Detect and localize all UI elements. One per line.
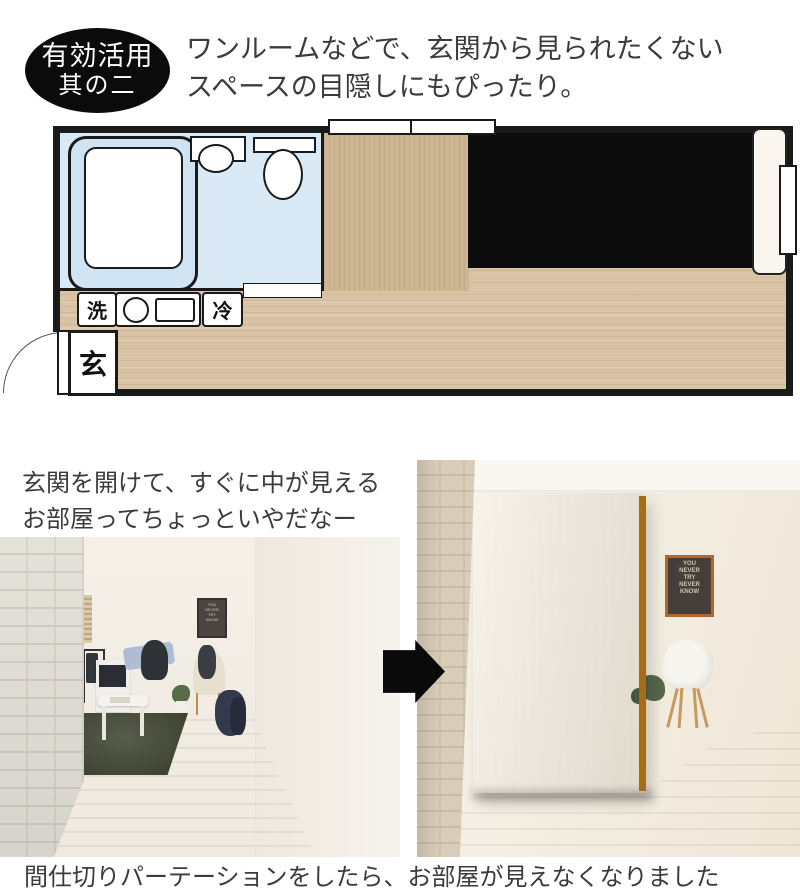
entrance-box: 玄 [68, 330, 118, 396]
washer-box: 洗 [77, 292, 117, 327]
badge-line2: 其の二 [59, 72, 137, 100]
chair-clothes [198, 645, 216, 679]
plan-window-right [779, 165, 797, 255]
plant-pot [176, 701, 186, 711]
photo-before-room-visible: YOU NEVER TRY KNOW [0, 537, 400, 857]
partition-edge [639, 496, 646, 791]
caption-line1: 玄関を開けて、すぐに中が見える [22, 466, 380, 502]
wall-poster: YOU NEVER TRY NEVER KNOW [665, 555, 714, 617]
orange-partition [473, 493, 645, 793]
usage-badge: 有効活用 其の二 [25, 28, 170, 113]
bathroom-door-opening [243, 283, 322, 298]
jacket [141, 640, 168, 680]
section-heading: ワンルームなどで、玄関から見られたくない スペースの目隠しにもぴったり。 [186, 30, 724, 106]
poster-line: NEVER [668, 582, 711, 589]
table-leg [102, 706, 106, 740]
white-shell-chair [663, 640, 713, 690]
chair-leg [678, 688, 684, 728]
plan-window-top-left [328, 119, 412, 135]
wall-poster: YOU NEVER TRY KNOW [197, 598, 227, 638]
poster-line: YOU [668, 561, 711, 568]
fridge-label: 冷 [213, 295, 233, 324]
heading-line1: ワンルームなどで、玄関から見られたくない [186, 30, 724, 68]
after-caption: 間仕切りパーテーションをしたら、お部屋が見えなくなりました [24, 857, 720, 892]
kitchen-sink-icon [155, 298, 195, 322]
tv-screen [99, 665, 126, 687]
notebook [110, 697, 130, 703]
poster-line: TRY [668, 575, 711, 582]
kitchen-burner-icon [123, 297, 149, 323]
chair-leg [666, 688, 679, 728]
toilet-bowl [263, 149, 303, 200]
hidden-space-black-zone [468, 133, 754, 268]
plan-wall-bottom [111, 389, 793, 396]
heading-line2: スペースの目隠しにもぴったり。 [186, 68, 724, 106]
white-brick-wall [0, 537, 84, 857]
photo-after-partition-blocking: YOU NEVER TRY NEVER KNOW [417, 460, 800, 857]
table-leg [140, 706, 144, 736]
poster-line: NEVER [668, 568, 711, 575]
chair-leg [696, 688, 709, 728]
before-caption: 玄関を開けて、すぐに中が見える お部屋ってちょっといやだなー [22, 466, 380, 538]
plan-wall-left [53, 126, 60, 332]
fridge-box: 冷 [202, 292, 243, 327]
washer-label: 洗 [87, 295, 107, 324]
badge-line1: 有効活用 [42, 41, 154, 72]
bathtub-inner [84, 147, 183, 269]
entrance-door-swing-arc [3, 332, 64, 393]
caption-line2: お部屋ってちょっといやだなー [22, 502, 380, 538]
sink-basin [198, 144, 234, 173]
plan-window-top-right [410, 119, 496, 135]
entrance-label: 玄 [79, 343, 107, 383]
plan-wood-floor-vertical [324, 133, 469, 291]
poster-line: KNOW [199, 617, 225, 622]
poster-line: KNOW [668, 589, 711, 596]
bag-pocket [230, 697, 246, 735]
chair-legs [667, 688, 709, 728]
